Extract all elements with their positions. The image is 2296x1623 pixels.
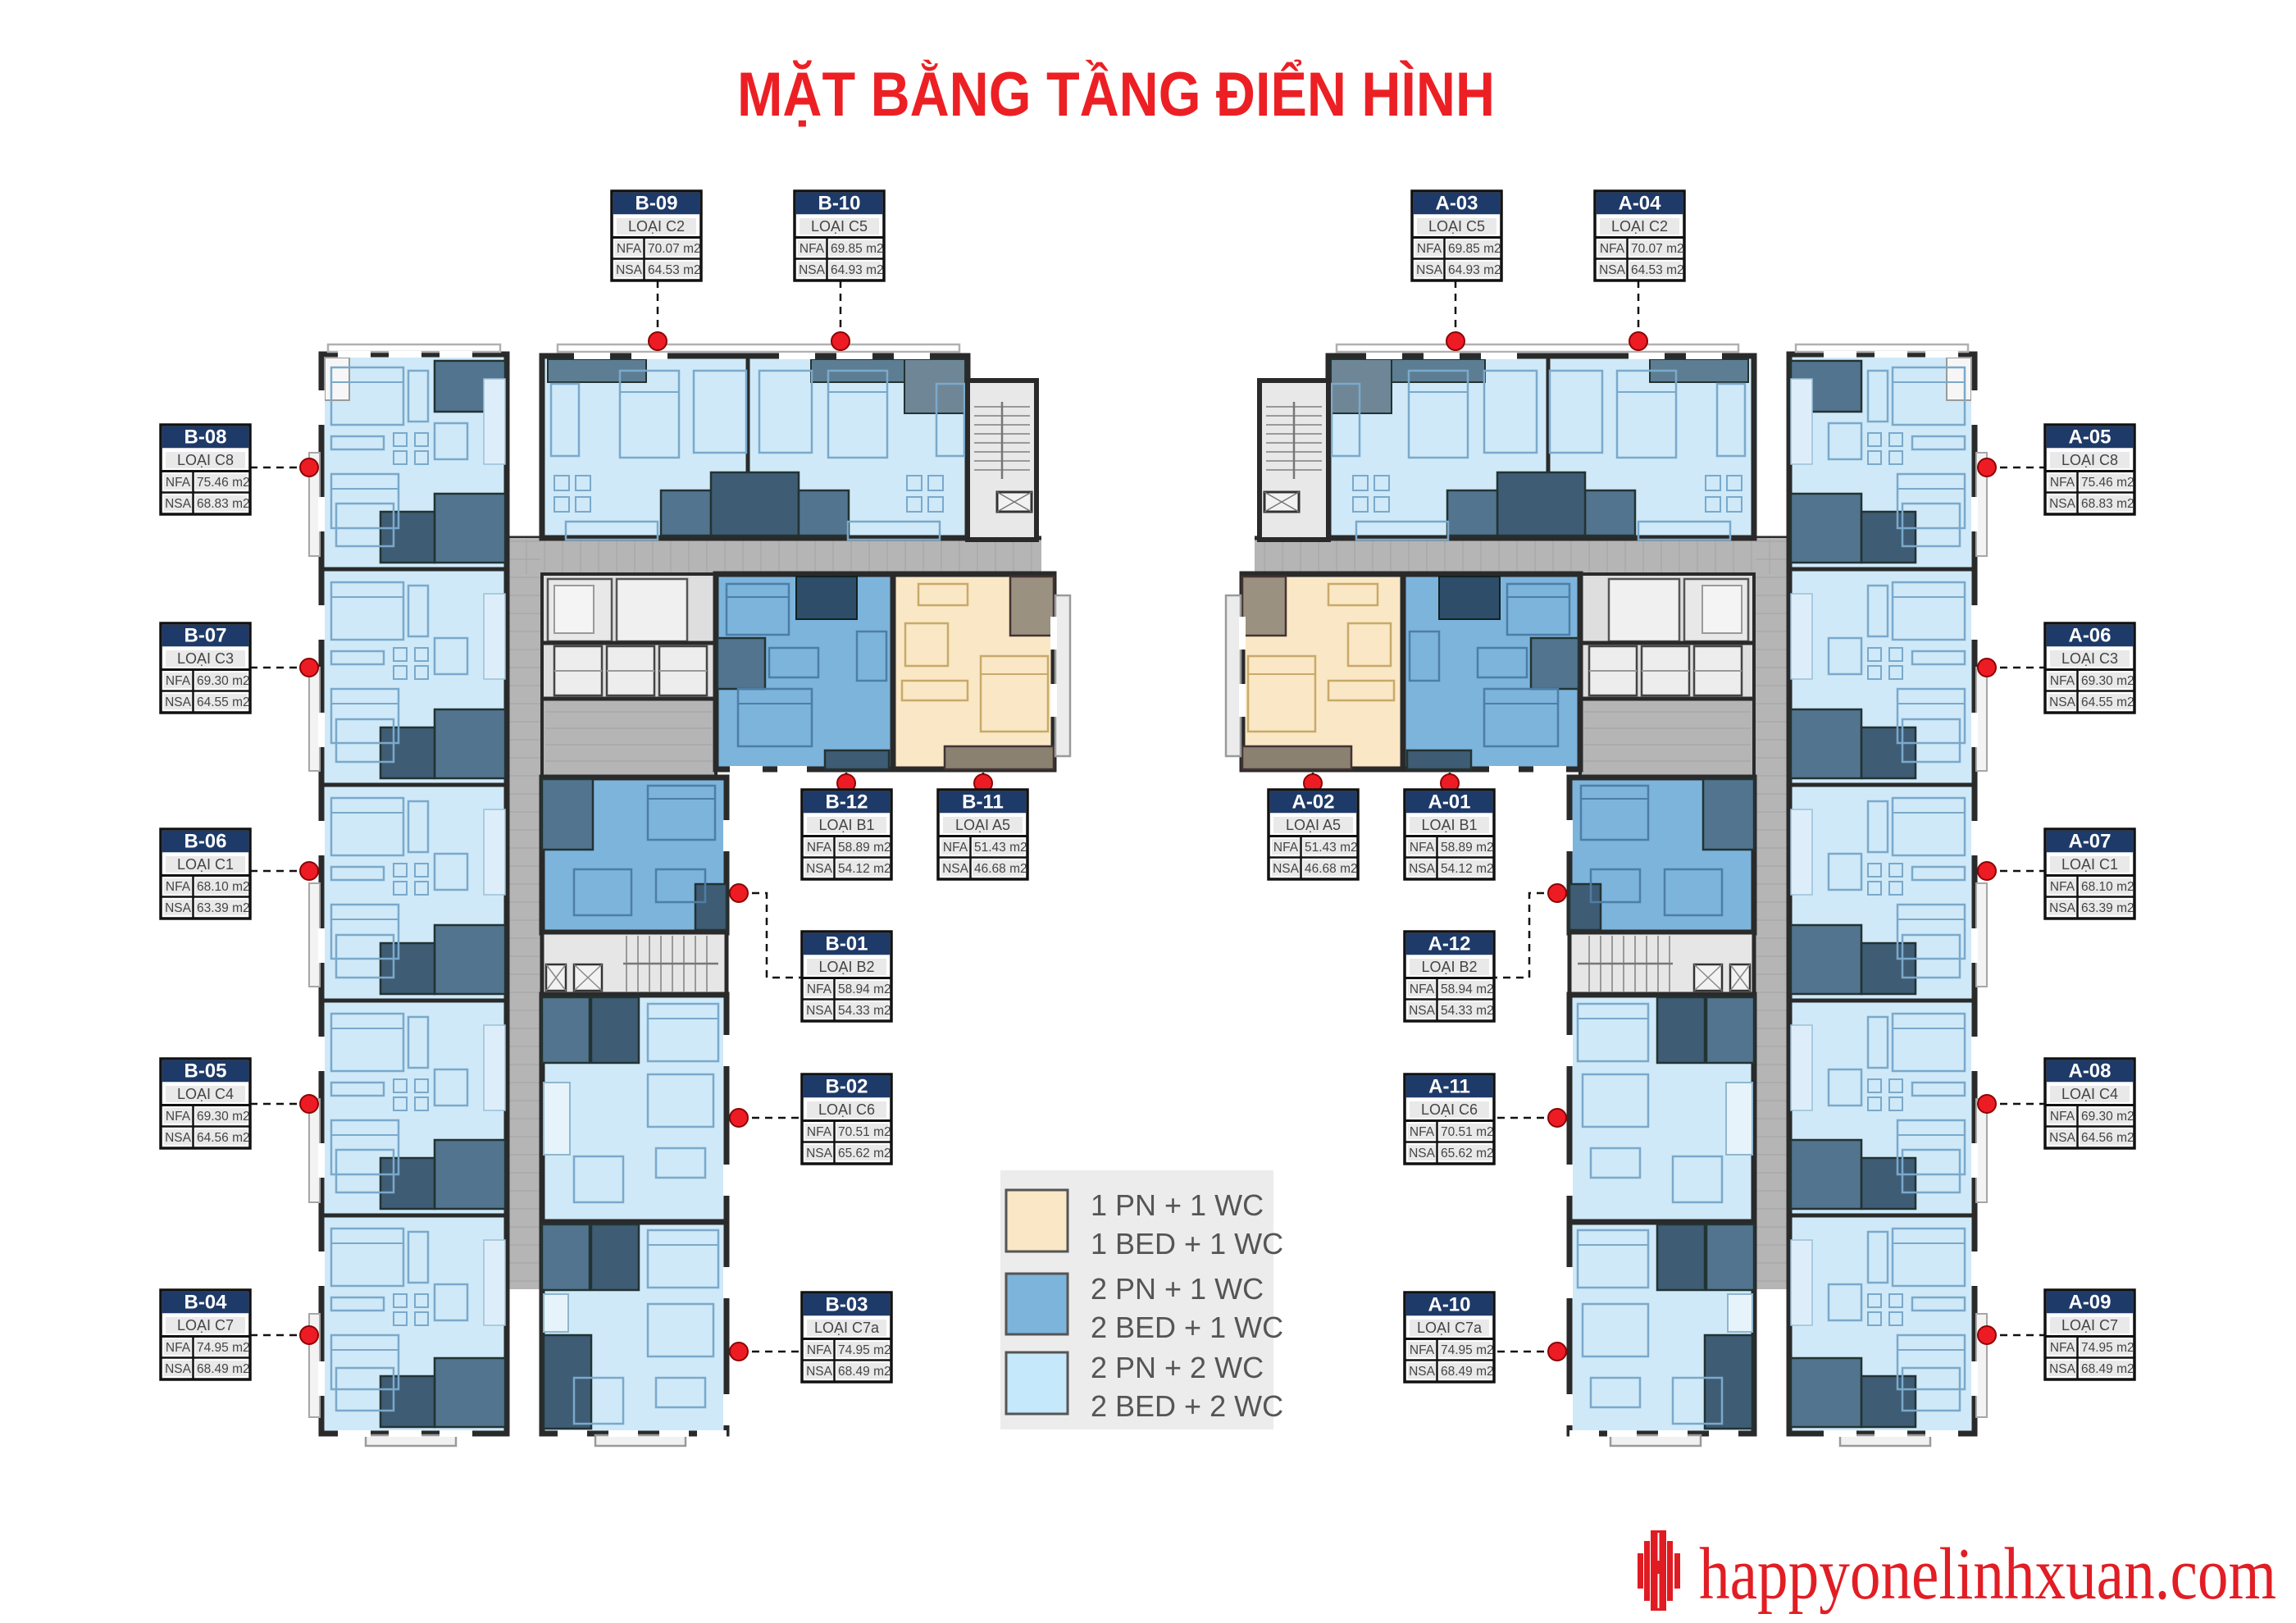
svg-text:64.55 m2: 64.55 m2 (197, 695, 250, 709)
svg-text:NSA: NSA (1416, 263, 1443, 277)
svg-text:NSA: NSA (942, 862, 969, 876)
svg-text:B-11: B-11 (962, 791, 1004, 814)
svg-text:NSA: NSA (1409, 862, 1436, 876)
svg-text:LOẠI C7: LOẠI C7 (177, 1317, 234, 1334)
svg-text:B-03: B-03 (825, 1294, 868, 1316)
svg-text:68.10 m2: 68.10 m2 (2081, 880, 2134, 894)
svg-text:68.49 m2: 68.49 m2 (2081, 1362, 2134, 1376)
svg-text:NSA: NSA (2049, 497, 2076, 511)
svg-text:NSA: NSA (806, 862, 833, 876)
svg-text:NFA: NFA (2050, 674, 2075, 688)
svg-text:A-01: A-01 (1428, 791, 1470, 814)
svg-text:LOẠI A5: LOẠI A5 (955, 817, 1010, 833)
svg-text:happyonelinhxuan.com: happyonelinhxuan.com (1699, 1534, 2276, 1615)
svg-text:LOẠI C4: LOẠI C4 (2061, 1086, 2118, 1102)
svg-text:LOẠI C8: LOẠI C8 (2061, 452, 2118, 468)
svg-text:NFA: NFA (617, 242, 642, 256)
svg-text:69.30 m2: 69.30 m2 (2081, 1110, 2134, 1124)
svg-text:LOẠI C7a: LOẠI C7a (814, 1320, 880, 1336)
svg-text:68.83 m2: 68.83 m2 (197, 497, 250, 511)
svg-text:74.95 m2: 74.95 m2 (838, 1343, 891, 1357)
svg-text:64.56 m2: 64.56 m2 (2081, 1131, 2134, 1145)
svg-text:LOẠI C5: LOẠI C5 (811, 218, 868, 235)
svg-text:69.85 m2: 69.85 m2 (831, 242, 884, 256)
svg-text:NSA: NSA (165, 497, 192, 511)
svg-text:58.94 m2: 58.94 m2 (838, 982, 891, 996)
svg-text:2 PN + 1 WC: 2 PN + 1 WC (1091, 1272, 1264, 1306)
svg-text:LOẠI C6: LOẠI C6 (1421, 1101, 1478, 1118)
svg-text:NFA: NFA (1273, 841, 1299, 855)
svg-text:NSA: NSA (165, 695, 192, 709)
svg-text:A-08: A-08 (2068, 1060, 2111, 1083)
svg-text:64.53 m2: 64.53 m2 (1631, 263, 1684, 277)
svg-text:58.89 m2: 58.89 m2 (1441, 841, 1494, 855)
svg-text:NFA: NFA (2050, 880, 2075, 894)
svg-text:B-05: B-05 (184, 1060, 226, 1083)
svg-text:NSA: NSA (165, 1131, 192, 1145)
svg-text:63.39 m2: 63.39 m2 (197, 901, 250, 915)
svg-text:B-02: B-02 (825, 1076, 868, 1098)
svg-text:NSA: NSA (1273, 862, 1300, 876)
svg-text:NFA: NFA (166, 1110, 191, 1124)
svg-text:B-09: B-09 (635, 193, 677, 215)
svg-text:68.49 m2: 68.49 m2 (838, 1365, 891, 1379)
svg-text:NFA: NFA (166, 880, 191, 894)
svg-text:70.51 m2: 70.51 m2 (838, 1125, 891, 1139)
svg-text:54.12 m2: 54.12 m2 (838, 862, 891, 876)
svg-text:68.10 m2: 68.10 m2 (197, 880, 250, 894)
svg-text:54.33 m2: 54.33 m2 (838, 1004, 891, 1018)
svg-text:2 PN + 2 WC: 2 PN + 2 WC (1091, 1351, 1264, 1384)
svg-text:A-02: A-02 (1291, 791, 1334, 814)
svg-text:51.43 m2: 51.43 m2 (974, 841, 1027, 855)
svg-text:NFA: NFA (166, 476, 191, 490)
svg-text:74.95 m2: 74.95 m2 (1441, 1343, 1494, 1357)
svg-text:B-01: B-01 (825, 933, 868, 955)
svg-text:NFA: NFA (807, 982, 832, 996)
svg-text:NSA: NSA (806, 1004, 833, 1018)
svg-text:B-06: B-06 (184, 831, 226, 853)
svg-text:NSA: NSA (1409, 1004, 1436, 1018)
svg-text:NSA: NSA (165, 901, 192, 915)
svg-text:NFA: NFA (1417, 242, 1442, 256)
svg-text:64.93 m2: 64.93 m2 (1448, 263, 1501, 277)
svg-text:64.53 m2: 64.53 m2 (648, 263, 701, 277)
svg-text:64.55 m2: 64.55 m2 (2081, 695, 2134, 709)
svg-text:A-09: A-09 (2068, 1292, 2111, 1314)
svg-text:70.51 m2: 70.51 m2 (1441, 1125, 1494, 1139)
svg-text:46.68 m2: 46.68 m2 (1305, 862, 1358, 876)
svg-text:NFA: NFA (1410, 841, 1435, 855)
svg-text:2 BED + 1 WC: 2 BED + 1 WC (1091, 1311, 1283, 1344)
svg-text:LOẠI C2: LOẠI C2 (628, 218, 685, 235)
svg-text:1 PN + 1 WC: 1 PN + 1 WC (1091, 1188, 1264, 1222)
svg-text:46.68 m2: 46.68 m2 (974, 862, 1027, 876)
svg-text:LOẠI C6: LOẠI C6 (818, 1101, 875, 1118)
svg-text:69.30 m2: 69.30 m2 (197, 1110, 250, 1124)
svg-text:LOẠI C2: LOẠI C2 (1611, 218, 1668, 235)
svg-text:69.85 m2: 69.85 m2 (1448, 242, 1501, 256)
svg-text:74.95 m2: 74.95 m2 (197, 1341, 250, 1355)
svg-text:LOẠI C1: LOẠI C1 (177, 856, 234, 873)
svg-text:NFA: NFA (2050, 476, 2075, 490)
svg-text:A-03: A-03 (1435, 193, 1478, 215)
svg-text:LOẠI B2: LOẠI B2 (818, 959, 874, 975)
svg-text:75.46 m2: 75.46 m2 (197, 476, 250, 490)
svg-text:NFA: NFA (166, 1341, 191, 1355)
svg-text:54.12 m2: 54.12 m2 (1441, 862, 1494, 876)
svg-text:B-08: B-08 (184, 426, 226, 449)
svg-text:LOẠI C3: LOẠI C3 (177, 650, 234, 667)
svg-text:NSA: NSA (2049, 1131, 2076, 1145)
svg-text:70.07 m2: 70.07 m2 (648, 242, 701, 256)
svg-text:A-05: A-05 (2068, 426, 2111, 449)
svg-text:NFA: NFA (943, 841, 968, 855)
svg-text:A-07: A-07 (2068, 831, 2111, 853)
svg-text:NSA: NSA (799, 263, 826, 277)
svg-text:64.93 m2: 64.93 m2 (831, 263, 884, 277)
svg-text:NSA: NSA (2049, 695, 2076, 709)
svg-text:B-07: B-07 (184, 625, 226, 647)
svg-text:LOẠI C5: LOẠI C5 (1428, 218, 1485, 235)
svg-text:A-06: A-06 (2068, 625, 2111, 647)
svg-text:54.33 m2: 54.33 m2 (1441, 1004, 1494, 1018)
svg-text:LOẠI C7: LOẠI C7 (2061, 1317, 2118, 1334)
svg-text:70.07 m2: 70.07 m2 (1631, 242, 1684, 256)
svg-text:LOẠI C1: LOẠI C1 (2061, 856, 2118, 873)
svg-text:B-10: B-10 (818, 193, 860, 215)
svg-text:NFA: NFA (807, 1343, 832, 1357)
svg-text:NFA: NFA (799, 242, 825, 256)
svg-text:58.94 m2: 58.94 m2 (1441, 982, 1494, 996)
svg-text:B-12: B-12 (825, 791, 868, 814)
svg-text:63.39 m2: 63.39 m2 (2081, 901, 2134, 915)
svg-text:68.49 m2: 68.49 m2 (197, 1362, 250, 1376)
svg-text:58.89 m2: 58.89 m2 (838, 841, 891, 855)
svg-text:NSA: NSA (806, 1365, 833, 1379)
svg-text:NFA: NFA (1600, 242, 1625, 256)
svg-text:B-04: B-04 (184, 1292, 227, 1314)
svg-text:NFA: NFA (807, 841, 832, 855)
svg-text:65.62 m2: 65.62 m2 (838, 1147, 891, 1160)
svg-text:LOẠI C7a: LOẠI C7a (1417, 1320, 1483, 1336)
svg-text:NFA: NFA (2050, 1110, 2075, 1124)
svg-text:LOẠI B1: LOẠI B1 (818, 817, 874, 833)
svg-text:2 BED + 2 WC: 2 BED + 2 WC (1091, 1389, 1283, 1423)
svg-text:51.43 m2: 51.43 m2 (1305, 841, 1358, 855)
svg-text:74.95 m2: 74.95 m2 (2081, 1341, 2134, 1355)
svg-text:LOẠI C4: LOẠI C4 (177, 1086, 234, 1102)
svg-text:69.30 m2: 69.30 m2 (197, 674, 250, 688)
svg-text:LOẠI B1: LOẠI B1 (1421, 817, 1477, 833)
svg-text:NSA: NSA (806, 1147, 833, 1160)
svg-text:NSA: NSA (616, 263, 643, 277)
svg-text:65.62 m2: 65.62 m2 (1441, 1147, 1494, 1160)
svg-text:64.56 m2: 64.56 m2 (197, 1131, 250, 1145)
svg-text:LOẠI A5: LOẠI A5 (1286, 817, 1341, 833)
svg-text:NSA: NSA (165, 1362, 192, 1376)
svg-text:A-12: A-12 (1428, 933, 1470, 955)
svg-text:NSA: NSA (2049, 901, 2076, 915)
svg-text:75.46 m2: 75.46 m2 (2081, 476, 2134, 490)
svg-text:LOẠI B2: LOẠI B2 (1421, 959, 1477, 975)
svg-text:69.30 m2: 69.30 m2 (2081, 674, 2134, 688)
svg-text:NSA: NSA (1409, 1147, 1436, 1160)
svg-text:68.49 m2: 68.49 m2 (1441, 1365, 1494, 1379)
svg-text:68.83 m2: 68.83 m2 (2081, 497, 2134, 511)
svg-text:MẶT BẰNG TẦNG ĐIỂN HÌNH: MẶT BẰNG TẦNG ĐIỂN HÌNH (737, 59, 1495, 130)
svg-text:NFA: NFA (1410, 1343, 1435, 1357)
svg-text:NFA: NFA (1410, 982, 1435, 996)
svg-text:A-04: A-04 (1618, 193, 1661, 215)
svg-text:NSA: NSA (1599, 263, 1626, 277)
svg-text:NFA: NFA (166, 674, 191, 688)
svg-text:A-10: A-10 (1428, 1294, 1470, 1316)
svg-text:LOẠI C3: LOẠI C3 (2061, 650, 2118, 667)
svg-text:NFA: NFA (2050, 1341, 2075, 1355)
svg-text:1 BED + 1 WC: 1 BED + 1 WC (1091, 1227, 1283, 1261)
svg-text:LOẠI C8: LOẠI C8 (177, 452, 234, 468)
svg-text:A-11: A-11 (1428, 1076, 1470, 1098)
svg-text:NSA: NSA (1409, 1365, 1436, 1379)
svg-text:NFA: NFA (807, 1125, 832, 1139)
svg-text:NFA: NFA (1410, 1125, 1435, 1139)
svg-text:NSA: NSA (2049, 1362, 2076, 1376)
